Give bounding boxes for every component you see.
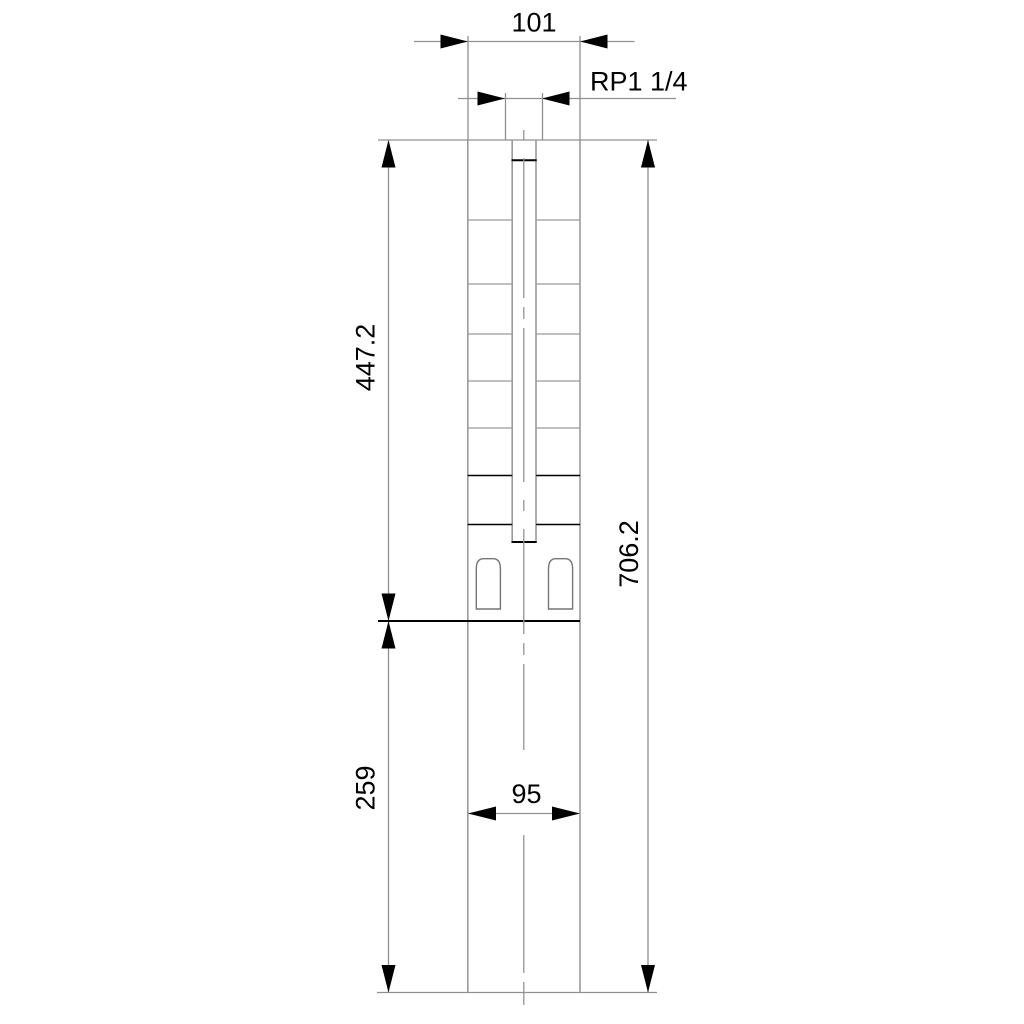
svg-text:101: 101 <box>511 8 556 38</box>
svg-text:706.2: 706.2 <box>614 520 644 588</box>
svg-text:95: 95 <box>511 779 541 809</box>
svg-text:RP1 1/4: RP1 1/4 <box>590 67 688 97</box>
svg-text:259: 259 <box>351 765 381 810</box>
svg-text:447.2: 447.2 <box>351 324 381 392</box>
